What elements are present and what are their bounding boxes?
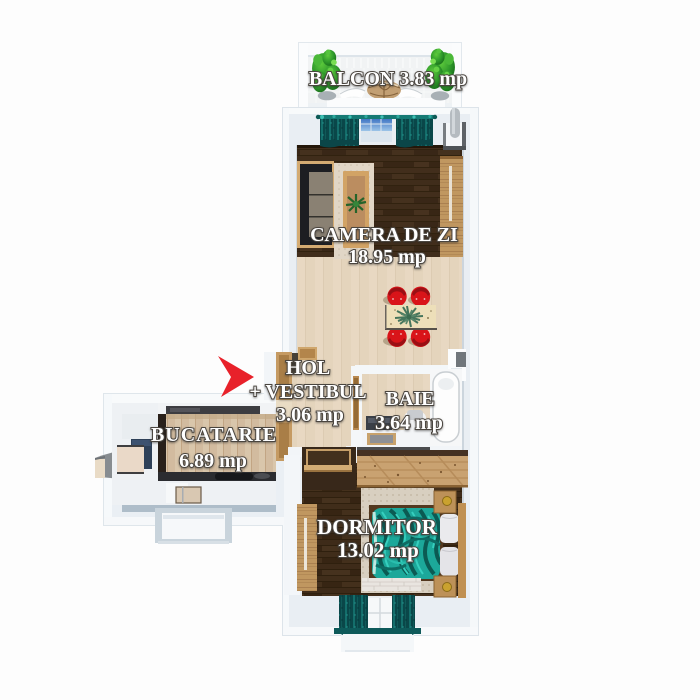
svg-text:DORMITOR: DORMITOR xyxy=(317,515,438,539)
svg-text:3.06 mp: 3.06 mp xyxy=(276,404,344,426)
svg-text:6.89 mp: 6.89 mp xyxy=(179,450,247,472)
svg-text:+ VESTIBUL: + VESTIBUL xyxy=(249,381,366,403)
svg-text:BUCATARIE: BUCATARIE xyxy=(151,424,277,446)
svg-text:13.02 mp: 13.02 mp xyxy=(337,538,419,562)
svg-text:3.64 mp: 3.64 mp xyxy=(375,412,443,434)
svg-text:HOL: HOL xyxy=(286,357,330,379)
svg-text:BAIE: BAIE xyxy=(386,388,435,410)
svg-text:BALCON 3.83 mp: BALCON 3.83 mp xyxy=(309,68,467,90)
svg-text:CAMERA DE ZI: CAMERA DE ZI xyxy=(310,224,458,246)
svg-text:18.95 mp: 18.95 mp xyxy=(348,246,426,268)
